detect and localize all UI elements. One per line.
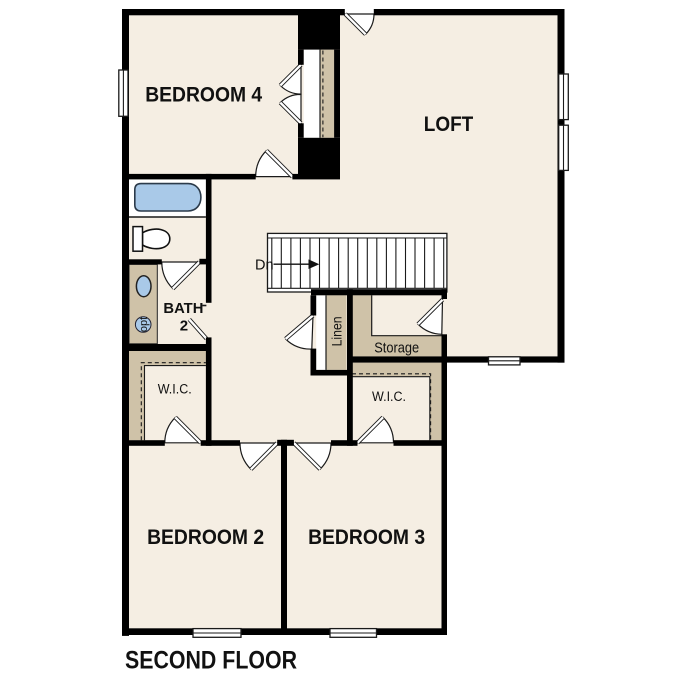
svg-text:BEDROOM 3: BEDROOM 3 bbox=[308, 526, 425, 549]
svg-text:W.I.C.: W.I.C. bbox=[372, 389, 406, 404]
svg-text:BEDROOM 4: BEDROOM 4 bbox=[145, 83, 262, 106]
svg-text:Dn: Dn bbox=[255, 257, 274, 273]
svg-text:Storage: Storage bbox=[374, 341, 419, 357]
svg-text:Linen: Linen bbox=[328, 316, 344, 346]
svg-text:BEDROOM 2: BEDROOM 2 bbox=[147, 526, 264, 549]
svg-text:LOFT: LOFT bbox=[424, 113, 474, 136]
svg-text:W.I.C.: W.I.C. bbox=[158, 382, 192, 397]
svg-text:2: 2 bbox=[180, 318, 188, 335]
svg-text:SECOND FLOOR: SECOND FLOOR bbox=[125, 646, 297, 674]
svg-text:opt: opt bbox=[138, 317, 150, 332]
svg-text:BATH: BATH bbox=[163, 300, 203, 317]
